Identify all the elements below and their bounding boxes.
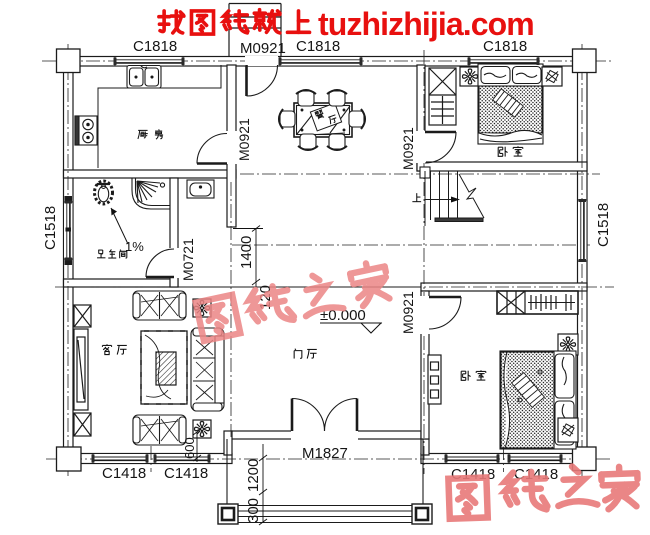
svg-text:M0921: M0921 [240,40,286,57]
svg-text:1200: 1200 [245,459,262,492]
svg-text:C1418: C1418 [102,465,146,482]
svg-text:M0921: M0921 [400,127,416,170]
svg-text:M0721: M0721 [180,238,196,281]
svg-text:600: 600 [182,437,197,459]
svg-text:300: 300 [245,498,262,523]
svg-text:C1418: C1418 [164,465,208,482]
svg-text:C1518: C1518 [595,203,612,247]
svg-text:1%: 1% [125,239,144,254]
svg-text:C1518: C1518 [42,206,59,250]
svg-text:1400: 1400 [238,236,255,269]
svg-text:C1818: C1818 [133,38,177,55]
svg-text:M0921: M0921 [400,291,416,334]
svg-text:M0921: M0921 [236,118,252,161]
svg-text:M1827: M1827 [302,445,348,462]
svg-text:tuzhizhijia.com: tuzhizhijia.com [318,6,534,42]
